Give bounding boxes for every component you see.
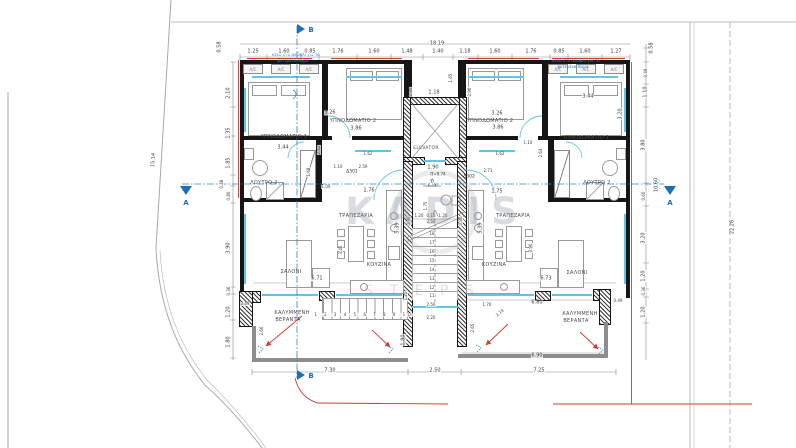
dim-label: 1.85 bbox=[227, 157, 232, 169]
dim-label: 0.58 bbox=[650, 42, 655, 54]
wall-partition-left bbox=[322, 60, 328, 138]
room-label-kitchen-right: ΚΟΥΖΙΝΑ bbox=[482, 262, 506, 269]
ac-unit: A/C bbox=[299, 64, 319, 74]
dim-label: 2.71 bbox=[483, 169, 493, 173]
sliding-door bbox=[552, 294, 592, 296]
dim-label: 1.60 bbox=[579, 50, 591, 55]
dim-label: 2.19 bbox=[495, 308, 505, 317]
unit-label-d302: Δ302 bbox=[463, 175, 475, 180]
pillow bbox=[593, 85, 618, 96]
dim-label: 3.26 bbox=[491, 112, 503, 117]
dim-label: 0.36 bbox=[227, 286, 231, 296]
dim-label: 15.14 bbox=[151, 152, 157, 168]
room-label-veranda-left-1: ΚΑΛΥΜΜΕΝΗ bbox=[274, 310, 309, 317]
dim-label: 3.26 bbox=[324, 111, 336, 116]
dim-label: 2.66 bbox=[260, 326, 264, 336]
sofa-right bbox=[558, 240, 584, 288]
watermark-subtitle: S T E P S bbox=[352, 283, 492, 299]
window bbox=[468, 76, 524, 78]
dim-label: 0.36 bbox=[642, 286, 646, 296]
room-label-bath-left: ΛΟΥΤΡΟ 2 bbox=[250, 180, 278, 187]
dim-label: 3.86 bbox=[350, 127, 362, 132]
window bbox=[560, 76, 618, 78]
sliding-door bbox=[262, 294, 318, 296]
veranda-parapet-left-b bbox=[252, 358, 408, 362]
dim-label: 1.76 bbox=[525, 50, 537, 55]
dim-label: 6.80 bbox=[531, 301, 543, 306]
chair bbox=[367, 240, 375, 248]
dim-label: 1.10 bbox=[523, 141, 533, 145]
sofa-left bbox=[286, 240, 312, 288]
wall-right bbox=[626, 60, 630, 298]
dim-label: 2.64 bbox=[539, 148, 543, 158]
note-planted-right-1: κενό στο ανώφλι για το bbox=[552, 59, 599, 63]
window bbox=[355, 150, 391, 152]
dim-label: 3.44 bbox=[582, 95, 594, 100]
dim-label: 0.60 bbox=[642, 191, 646, 201]
wall-corridor-l2 bbox=[352, 136, 404, 140]
chair bbox=[495, 240, 503, 248]
dim-label: 1.18 bbox=[459, 50, 471, 55]
window bbox=[624, 214, 626, 284]
wall-corridor-r2 bbox=[538, 136, 546, 140]
dim-label: 2.50 bbox=[429, 369, 441, 374]
dim-label: 1.27 bbox=[610, 50, 622, 55]
dim-label: 1.25 bbox=[247, 50, 259, 55]
kitchen-sink-left bbox=[388, 246, 400, 260]
dim-label: 2.62 bbox=[317, 145, 321, 155]
window bbox=[252, 76, 310, 78]
dim-label: 0.80 bbox=[227, 191, 231, 201]
dim-label: 1.10 bbox=[333, 165, 343, 169]
dim-label: 2.96 bbox=[468, 87, 472, 97]
dim-label: 3.80 bbox=[642, 139, 647, 151]
note-planted-left-2: φυτεμένο δώμα bbox=[277, 59, 308, 63]
chair bbox=[367, 251, 375, 259]
veranda-parapet-right-v bbox=[604, 322, 608, 358]
accessible-wc-right bbox=[602, 160, 618, 176]
dim-label: 1.62 bbox=[495, 152, 505, 156]
dim-label: 1.60 bbox=[278, 50, 290, 55]
dim-label: 3.20 bbox=[619, 108, 624, 120]
dim-label: 2.50 bbox=[426, 303, 436, 307]
level-label: Π=9.74 bbox=[430, 172, 445, 177]
watermark-logo: KADIS bbox=[322, 190, 552, 233]
dim-label: 7.30 bbox=[324, 369, 336, 374]
dim-label: 13 bbox=[429, 277, 435, 281]
pillow bbox=[281, 85, 306, 96]
elevator-wall-left bbox=[404, 98, 410, 164]
wall-corridor-l1 bbox=[322, 136, 332, 140]
dim-label: 1 2 3 4 5 6 7 8 9 10 bbox=[314, 313, 414, 317]
dim-label: 1.20 bbox=[642, 306, 647, 318]
ac-label: A/C bbox=[250, 67, 257, 72]
window bbox=[244, 214, 246, 284]
dim-label: 3.20 bbox=[642, 232, 647, 244]
sink-bowl bbox=[500, 283, 508, 291]
dim-label: 1.62 bbox=[363, 152, 373, 156]
room-label-bedroom2-left: ΥΠΝΟΔΩΜΑΤΙΟ 2 bbox=[330, 118, 377, 125]
sink-right bbox=[616, 148, 626, 160]
column-1v bbox=[240, 292, 252, 326]
dim-label: 18.19 bbox=[429, 42, 444, 47]
room-label-veranda-right-1: ΚΑΛΥΜΜΕΝΗ bbox=[562, 311, 597, 318]
dim-label: 1.40 bbox=[432, 50, 444, 55]
dim-label: 1.35 bbox=[227, 127, 232, 139]
dim-label: 3.90 bbox=[529, 243, 533, 253]
dim-label: 1.80 bbox=[402, 334, 407, 346]
dim-label: 1.70 bbox=[482, 303, 492, 307]
room-label-bath-right: ΛΟΥΤΡΟ 2 bbox=[583, 180, 611, 187]
ac-label: A/C bbox=[306, 67, 313, 72]
room-label-elevator: ELEVATOR bbox=[413, 146, 439, 152]
dim-label: 2.10 bbox=[227, 87, 232, 99]
dim-label: 1.20 bbox=[642, 270, 647, 282]
section-marker-a-left: A bbox=[183, 199, 188, 207]
dim-label: 1.20 bbox=[227, 306, 232, 318]
room-label-veranda-right-2: ΒΕΡΑΝΤΑ bbox=[563, 318, 588, 325]
dim-label: 17 bbox=[429, 241, 435, 245]
unit-label-d301: Δ301 bbox=[346, 170, 358, 175]
dim-label: 0.58 bbox=[218, 41, 223, 53]
dim-label: 3.86 bbox=[492, 126, 504, 131]
dim-label: 2.20 bbox=[426, 316, 436, 320]
veranda-parapet-left-v bbox=[252, 326, 256, 362]
dim-label: 16 bbox=[429, 250, 435, 254]
room-label-living-left: ΣΑΛΟΝΙ bbox=[281, 269, 302, 276]
room-label-bedroom1-right: ΥΠΝΟΔΩΜΑΤΙΟ 1 bbox=[563, 135, 610, 142]
room-label-living-right: ΣΑΛΟΝΙ bbox=[567, 270, 588, 277]
dim-label: 0.85 bbox=[304, 50, 316, 55]
ac-label: A/C bbox=[278, 67, 285, 72]
dim-label: 1.60 bbox=[489, 50, 501, 55]
window bbox=[624, 88, 626, 132]
elevator-door bbox=[424, 160, 446, 162]
room-label-kitchen-left: ΚΟΥΖΙΝΑ bbox=[367, 262, 391, 269]
ac-label: A/C bbox=[611, 67, 618, 72]
pillow bbox=[252, 85, 277, 96]
section-marker-b-bottom: B bbox=[308, 372, 313, 380]
dim-label: 2.59 bbox=[358, 165, 368, 169]
toilet-right bbox=[608, 186, 620, 201]
room-label-bedroom2-right: ΥΠΝΟΔΩΜΑΤΙΟ 2 bbox=[467, 118, 514, 125]
chair bbox=[495, 251, 503, 259]
column-4v bbox=[600, 290, 610, 324]
dim-label: 0.49 bbox=[240, 302, 250, 306]
sink-left bbox=[244, 148, 254, 160]
toilet-left bbox=[250, 186, 262, 201]
dim-label: 14 bbox=[429, 268, 435, 272]
dim-label: Υ/ bbox=[430, 180, 435, 184]
elevator-wall-top bbox=[404, 98, 466, 104]
dim-label: 3.44 bbox=[277, 146, 289, 151]
dim-label: 1.65 bbox=[449, 73, 453, 83]
dim-label: 1.48 bbox=[401, 50, 413, 55]
section-marker-b-top: B bbox=[308, 26, 313, 34]
dim-label: 0.85 bbox=[553, 50, 565, 55]
dim-label: 7.25 bbox=[533, 369, 545, 374]
ac-unit: A/C bbox=[604, 64, 624, 74]
ac-unit: A/C bbox=[243, 64, 263, 74]
dim-label: 0.49 bbox=[613, 299, 623, 303]
dim-label: 6.71 bbox=[311, 277, 323, 282]
dim-label: 22.26 bbox=[731, 219, 736, 234]
dim-label: 0.49 bbox=[644, 68, 648, 78]
elevator-wall-right bbox=[460, 98, 466, 164]
dim-label: 1.18 bbox=[428, 91, 440, 96]
kitchen-sink-right bbox=[472, 246, 484, 260]
floor-plan-canvas: A/C A/C A/C A/C A/C A/C bbox=[0, 0, 796, 448]
window bbox=[244, 88, 246, 132]
dim-label: 2.65 bbox=[471, 323, 475, 333]
dim-label: 1.10 bbox=[644, 86, 649, 98]
dim-label: 6.73 bbox=[540, 277, 552, 282]
accessible-wc-left bbox=[252, 160, 268, 176]
dim-label: 3.90 bbox=[227, 242, 232, 254]
dim-label: 2.95 bbox=[409, 87, 413, 97]
dim-label: 1.60 bbox=[368, 50, 380, 55]
dim-label: 15 bbox=[429, 259, 435, 263]
dim-label: 1.00 bbox=[321, 185, 331, 189]
dim-label: 1.90 bbox=[427, 166, 439, 171]
note-planted-right-2: φυτεμένο δώμα bbox=[557, 65, 588, 69]
dim-label: 0.48 bbox=[220, 179, 224, 189]
dim-label: 10.60 bbox=[655, 177, 660, 192]
room-label-bedroom1-left: ΥΠΝΟΔΩΜΑΤΙΟ 1 bbox=[261, 134, 308, 141]
wardrobe-right bbox=[554, 150, 570, 198]
dim-label: 3.46 bbox=[339, 245, 343, 255]
section-marker-a-right: A bbox=[667, 199, 672, 207]
ac-unit: A/C bbox=[271, 64, 291, 74]
dim-label: 1.68 bbox=[307, 167, 311, 177]
dim-label: 6.90 bbox=[531, 354, 543, 359]
room-label-veranda-left-2: ΒΕΡΑΝΤΑ bbox=[275, 317, 300, 324]
wall-corridor-r1 bbox=[466, 136, 518, 140]
dim-label: 1.80 bbox=[227, 336, 232, 348]
dim-label: 1.76 bbox=[332, 50, 344, 55]
window bbox=[346, 76, 402, 78]
